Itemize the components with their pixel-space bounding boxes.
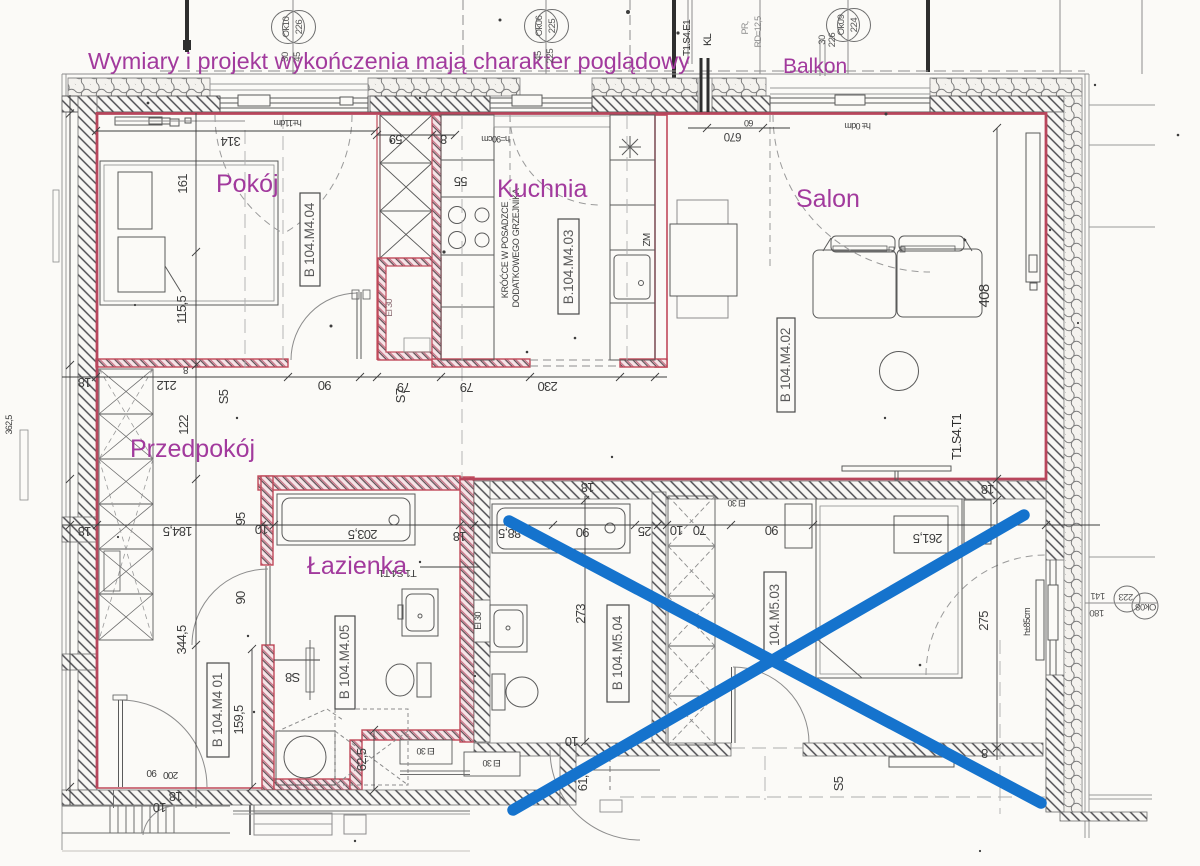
svg-text:KRÓĆCE W POSADZCE: KRÓĆCE W POSADZCE — [500, 202, 510, 299]
svg-text:25: 25 — [638, 524, 652, 539]
svg-text:161: 161 — [175, 174, 190, 194]
svg-text:122: 122 — [176, 415, 191, 435]
svg-text:90: 90 — [318, 378, 332, 393]
svg-text:ZM: ZM — [642, 233, 653, 246]
svg-text:8: 8 — [981, 746, 988, 761]
svg-text:h±11dm: h±11dm — [274, 118, 302, 128]
svg-text:115,5: 115,5 — [174, 296, 189, 325]
svg-text:70: 70 — [693, 523, 707, 538]
svg-text:Ok06: Ok06 — [534, 15, 545, 36]
svg-text:226: 226 — [294, 20, 305, 35]
svg-text:30: 30 — [280, 52, 291, 62]
svg-text:273: 273 — [573, 604, 588, 624]
svg-text:18: 18 — [78, 375, 92, 390]
svg-text:225: 225 — [545, 49, 556, 64]
svg-text:S5: S5 — [216, 389, 231, 404]
svg-text:226: 226 — [827, 33, 838, 48]
svg-text:18: 18 — [981, 482, 995, 497]
svg-text:230: 230 — [538, 379, 558, 394]
svg-text:159,5: 159,5 — [231, 705, 246, 735]
svg-text:200: 200 — [163, 769, 179, 780]
svg-text:Kuchnia: Kuchnia — [497, 175, 587, 203]
svg-text:EI 30: EI 30 — [483, 758, 501, 768]
svg-text:203,5: 203,5 — [348, 527, 378, 542]
svg-text:Ok10: Ok10 — [281, 16, 292, 37]
svg-text:EI 30: EI 30 — [728, 498, 746, 508]
svg-text:18: 18 — [169, 789, 183, 804]
svg-text:223: 223 — [1119, 591, 1134, 602]
svg-text:45: 45 — [533, 51, 544, 61]
svg-text:KL: KL — [702, 33, 714, 46]
svg-text:362,5: 362,5 — [4, 415, 14, 435]
svg-text:18: 18 — [581, 480, 595, 495]
svg-text:B 104.M4.04: B 104.M4.04 — [302, 202, 317, 277]
svg-text:141: 141 — [1091, 590, 1106, 601]
svg-text:18: 18 — [78, 524, 92, 539]
svg-text:90: 90 — [576, 525, 590, 540]
svg-text:104.M5.03: 104.M5.03 — [767, 584, 782, 646]
svg-text:59: 59 — [389, 132, 403, 147]
svg-text:T1.S4.T1: T1.S4.T1 — [950, 413, 964, 460]
svg-text:225: 225 — [547, 19, 558, 34]
svg-text:408: 408 — [976, 284, 993, 307]
svg-text:h± 0dm: h± 0dm — [845, 121, 871, 131]
svg-text:B 104.M4 01: B 104.M4 01 — [210, 673, 225, 747]
svg-text:Przedpokój: Przedpokój — [130, 435, 255, 463]
svg-text:B 104.M5.04: B 104.M5.04 — [610, 615, 625, 690]
svg-text:10: 10 — [255, 522, 269, 537]
svg-text:B.104.M4.03: B.104.M4.03 — [561, 230, 576, 304]
svg-text:10: 10 — [153, 800, 167, 815]
svg-text:Balkon: Balkon — [783, 55, 847, 78]
svg-text:90: 90 — [146, 767, 157, 778]
svg-text:90: 90 — [233, 591, 248, 605]
svg-text:EI 30: EI 30 — [384, 299, 394, 317]
svg-text:DODATKOWEGO GRZEJNIKA: DODATKOWEGO GRZEJNIKA — [511, 188, 521, 307]
svg-text:90: 90 — [765, 523, 779, 538]
svg-text:h±85cm: h±85cm — [1022, 608, 1032, 636]
svg-text:670: 670 — [724, 130, 741, 142]
svg-text:314: 314 — [221, 134, 241, 149]
svg-text:Ok09: Ok09 — [836, 14, 847, 35]
svg-text:B 104.M4.02: B 104.M4.02 — [778, 328, 793, 402]
svg-text:261,5: 261,5 — [913, 531, 943, 546]
svg-text:55: 55 — [454, 174, 468, 189]
svg-text:S5: S5 — [831, 776, 846, 791]
svg-text:275: 275 — [976, 611, 991, 631]
svg-text:212: 212 — [157, 378, 177, 393]
svg-text:h=90cm: h=90cm — [482, 134, 510, 144]
svg-text:Pokój: Pokój — [216, 170, 279, 198]
svg-text:95: 95 — [233, 512, 248, 526]
svg-text:45: 45 — [292, 52, 303, 62]
svg-text:180: 180 — [1090, 607, 1105, 618]
svg-text:184,5: 184,5 — [163, 524, 193, 539]
svg-text:EI 30: EI 30 — [473, 612, 483, 630]
svg-text:S8: S8 — [285, 670, 300, 685]
svg-text:62,5: 62,5 — [354, 748, 369, 771]
svg-text:Łazienka: Łazienka — [307, 552, 407, 580]
svg-text:10: 10 — [670, 523, 684, 538]
svg-text:8: 8 — [440, 132, 447, 147]
svg-text:224: 224 — [849, 18, 860, 33]
svg-text:344,5: 344,5 — [174, 625, 189, 655]
svg-text:EI 30: EI 30 — [417, 746, 435, 756]
svg-text:79: 79 — [460, 380, 474, 395]
svg-text:S7: S7 — [393, 388, 408, 403]
svg-text:B 104.M4.05: B 104.M4.05 — [337, 625, 352, 699]
svg-text:Salon: Salon — [796, 185, 860, 213]
svg-text:PR,: PR, — [740, 21, 750, 34]
svg-text:RD=12,5: RD=12,5 — [753, 16, 763, 48]
svg-text:Wymiary i projekt wykończenia: Wymiary i projekt wykończenia mają chara… — [88, 48, 690, 74]
svg-text:10: 10 — [565, 734, 579, 749]
svg-text:60: 60 — [744, 118, 753, 128]
svg-text:Ok08: Ok08 — [1135, 601, 1156, 612]
svg-text:18: 18 — [453, 529, 467, 544]
